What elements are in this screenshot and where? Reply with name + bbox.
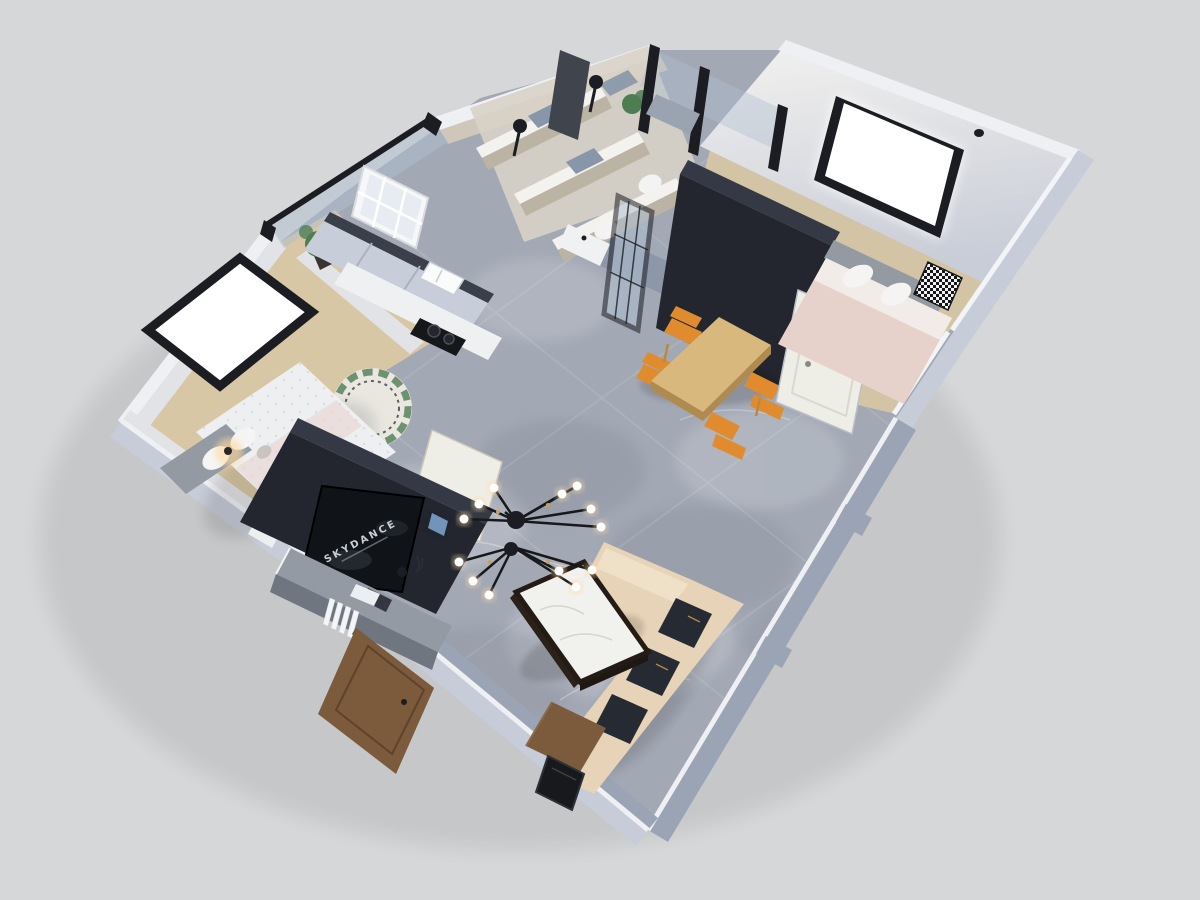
- vase: [397, 567, 407, 577]
- brass-joint: [546, 560, 550, 564]
- basin-faucet: [582, 236, 587, 241]
- floorplan-render: SKYDANCE: [0, 0, 1200, 900]
- brass-joint: [488, 560, 492, 564]
- brass-joint: [546, 503, 550, 507]
- brass-joint: [496, 510, 500, 514]
- shower-head: [589, 75, 603, 89]
- pot: [428, 325, 440, 337]
- entry-door-handle: [401, 699, 407, 705]
- shower-head: [513, 119, 527, 133]
- pendant-light: [974, 129, 984, 137]
- chandelier-hub: [507, 511, 525, 529]
- chandelier-hub: [504, 542, 518, 556]
- plant-leaves: [299, 225, 313, 239]
- marble-patch: [675, 410, 845, 510]
- bedside-lamp: [224, 447, 232, 455]
- pot: [444, 334, 454, 344]
- door-handle: [805, 361, 811, 367]
